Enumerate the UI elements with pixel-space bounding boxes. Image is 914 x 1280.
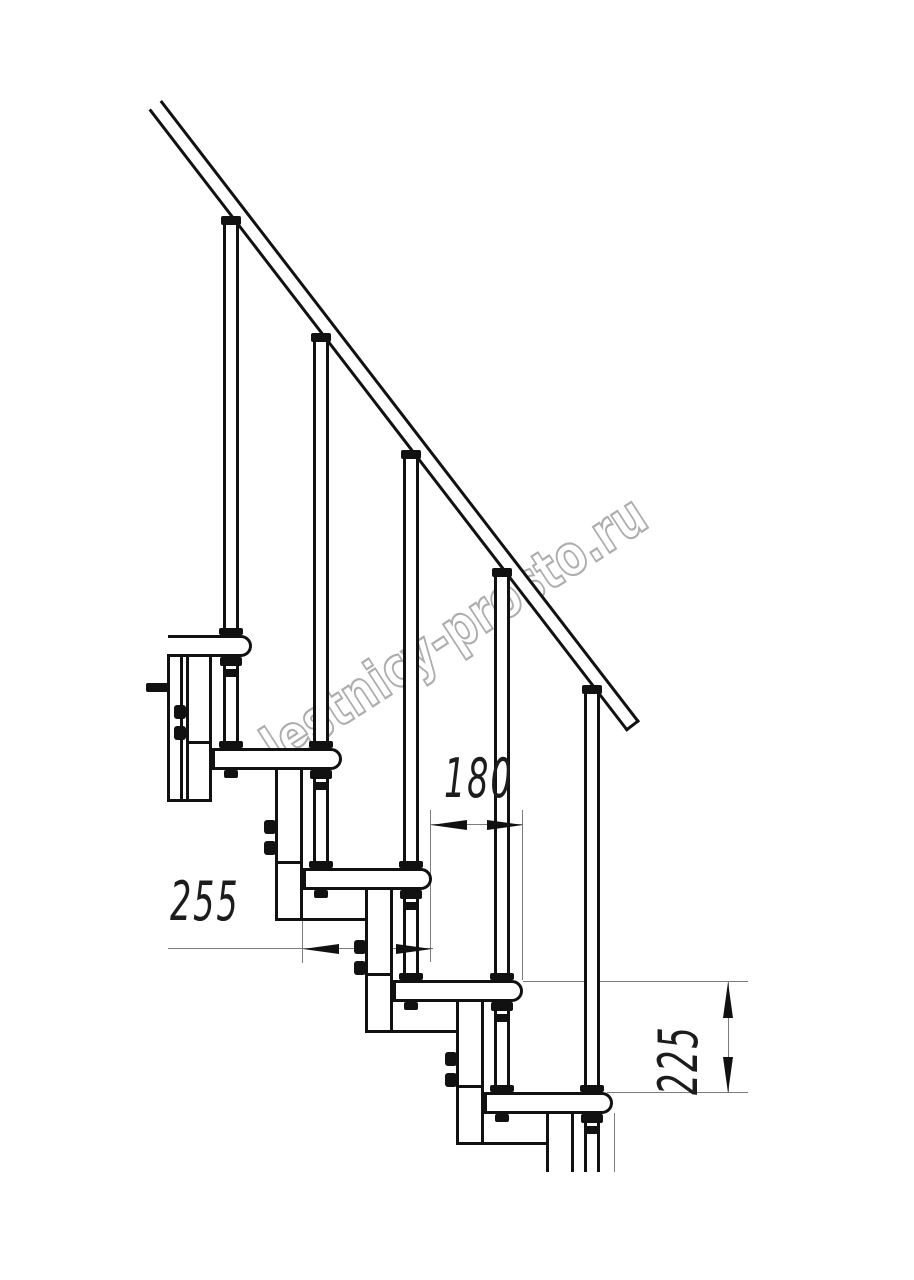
baluster <box>403 459 419 868</box>
dim-180-ext-line-right <box>522 810 523 980</box>
module-bolt <box>264 820 276 834</box>
module-column <box>275 767 303 921</box>
post-through-clamp <box>314 890 328 898</box>
module-bottom-plate <box>365 1030 456 1033</box>
dim-255-arrow-right <box>396 944 432 954</box>
stair-tread <box>168 635 252 657</box>
dim-225-ext-line-top <box>523 981 748 982</box>
module-column <box>365 887 393 1033</box>
baluster <box>313 342 329 748</box>
dim-255-label: 255 <box>170 875 239 929</box>
post-base <box>219 741 243 748</box>
module-bolt <box>445 1052 457 1066</box>
dim-180-label: 180 <box>444 752 513 806</box>
stair-tread <box>393 980 523 1002</box>
post-clamp <box>224 669 238 677</box>
dim-180-ext-line-left <box>430 810 431 962</box>
baluster-top-flange <box>311 333 331 342</box>
post-through-clamp <box>404 1002 418 1010</box>
module-column-joint <box>275 861 303 864</box>
baluster-top-flange <box>401 450 421 459</box>
dim-255-ext-line-left <box>302 916 303 963</box>
module-bottom-plate <box>456 1142 546 1145</box>
post-clamp <box>314 782 328 790</box>
post-top-flange <box>491 1002 513 1011</box>
module-bottom-plate <box>275 918 365 921</box>
baluster-base <box>580 1085 604 1092</box>
module-bolt <box>354 940 366 954</box>
baluster-top-flange <box>582 685 602 694</box>
inter-step-post <box>313 779 329 861</box>
post-through-clamp <box>495 1114 509 1122</box>
module-bolt <box>174 705 186 719</box>
inter-step-post <box>494 1011 510 1085</box>
dim-225-tail-line <box>614 1113 615 1172</box>
post-top-flange <box>220 657 242 666</box>
dim-225-label: 225 <box>652 1026 706 1095</box>
module-bottom-plate <box>167 799 212 802</box>
module-column <box>546 1111 574 1172</box>
post-clamp <box>495 1014 509 1022</box>
module-column-joint <box>186 741 212 744</box>
post-base <box>399 973 423 980</box>
baluster-base <box>219 628 243 635</box>
dim-255-line <box>168 948 433 949</box>
inter-step-post <box>403 899 419 973</box>
module-bolt <box>174 726 186 740</box>
baluster-top-flange <box>221 216 241 225</box>
dim-180-arrow-left <box>431 820 467 830</box>
post-base <box>309 861 333 868</box>
dim-225-arrow-up <box>723 982 733 1018</box>
baluster-base <box>309 741 333 748</box>
dim-255-arrow-left <box>303 944 339 954</box>
module-column <box>186 654 212 801</box>
baluster <box>584 694 600 1092</box>
post-top-flange <box>400 890 422 899</box>
baluster-top-flange <box>492 568 512 577</box>
post-clamp <box>404 902 418 910</box>
module-column-joint <box>456 1085 484 1088</box>
post-top-flange <box>581 1114 603 1123</box>
module-column <box>456 999 484 1145</box>
module-bolt <box>354 961 366 975</box>
module-column-joint <box>365 973 393 976</box>
dim-180-arrow-right <box>487 820 523 830</box>
stair-tread <box>212 748 342 770</box>
baluster-base <box>490 973 514 980</box>
post-clamp <box>585 1126 599 1134</box>
stair-drawing-canvas: lestnicy-prosto.ru 180 255 225 <box>0 0 914 1280</box>
module-bolt <box>445 1073 457 1087</box>
post-base <box>490 1085 514 1092</box>
stair-tread <box>484 1092 613 1114</box>
dim-225-arrow-down <box>723 1057 733 1093</box>
post-top-flange <box>310 770 332 779</box>
post-through-clamp <box>224 770 238 778</box>
baluster <box>223 225 239 635</box>
inter-step-post <box>223 666 239 741</box>
module-bolt <box>264 841 276 855</box>
baluster-base <box>399 861 423 868</box>
stair-tread <box>303 868 432 890</box>
wall-mount-rod <box>146 683 168 692</box>
